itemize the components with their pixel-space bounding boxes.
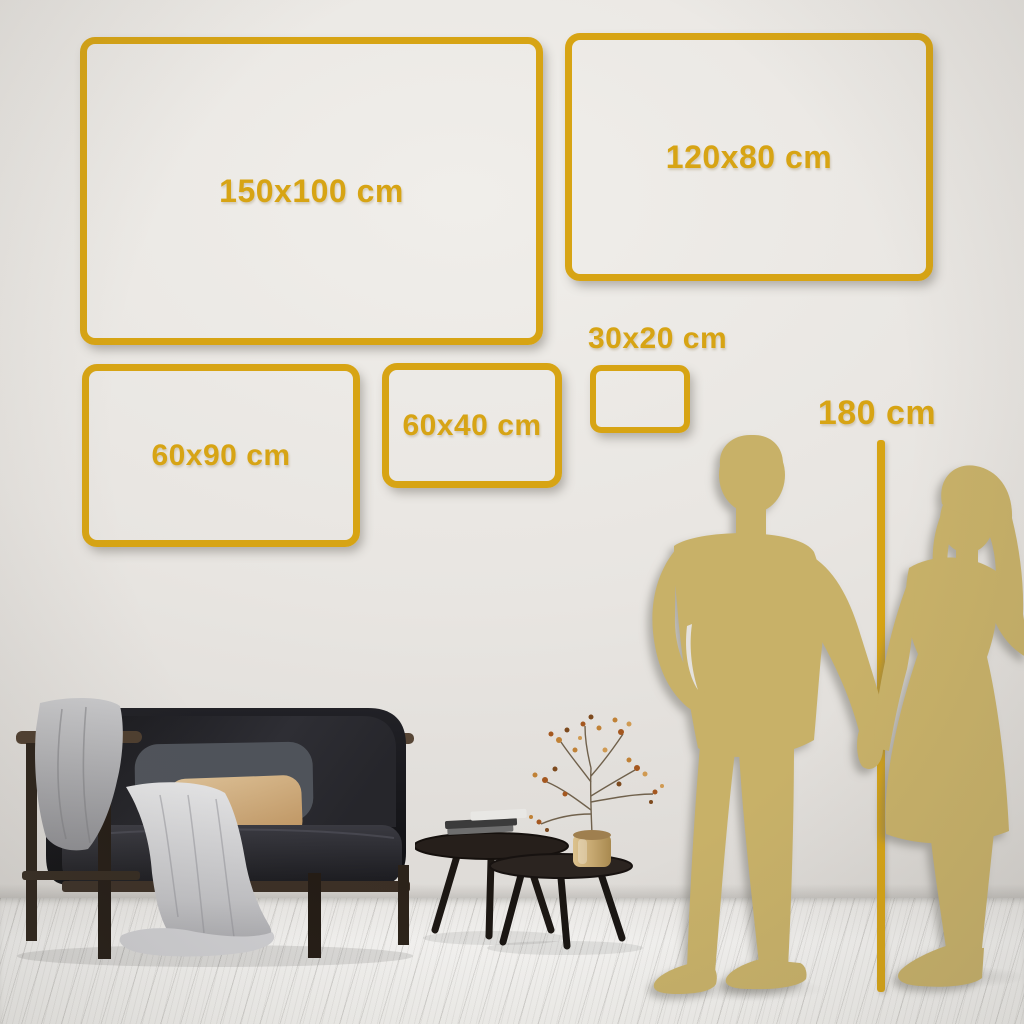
man-right-leg: [739, 742, 794, 968]
man-left-leg: [687, 746, 735, 973]
woman-leg: [930, 832, 994, 948]
couple-silhouette: [630, 428, 1024, 1008]
size-label-60x90: 60x90 cm: [151, 439, 290, 473]
sofa-side-stretcher: [22, 871, 140, 880]
size-frame-30x20: [590, 365, 690, 433]
size-label-30x20: 30x20 cm: [588, 322, 727, 356]
man-right-shoe: [726, 959, 807, 989]
size-label-120x80: 120x80 cm: [666, 139, 832, 176]
size-label-150x100: 150x100 cm: [219, 173, 404, 210]
size-frame-60x40: 60x40 cm: [382, 363, 562, 488]
gold-vase-mouth: [573, 830, 611, 840]
man-left-shoe: [654, 964, 717, 994]
man-silhouette: [652, 435, 885, 994]
size-frame-150x100: 150x100 cm: [80, 37, 543, 345]
size-guide-scene: 150x100 cm 120x80 cm 60x90 cm 60x40 cm 3…: [0, 0, 1024, 1024]
man-torso: [674, 533, 824, 757]
gold-vase-highlight: [578, 839, 587, 864]
sofa-leg-front-right: [308, 873, 321, 958]
books-stack: [444, 809, 527, 835]
size-label-60x40: 60x40 cm: [402, 409, 541, 443]
sofa-illustration: [10, 695, 420, 970]
sofa-leg-back-left: [26, 741, 37, 941]
size-frame-120x80: 120x80 cm: [565, 33, 933, 281]
sofa-leg-back-right: [398, 865, 409, 945]
size-frame-60x90: 60x90 cm: [82, 364, 360, 547]
woman-shoe: [898, 946, 984, 987]
woman-silhouette: [875, 465, 1024, 986]
